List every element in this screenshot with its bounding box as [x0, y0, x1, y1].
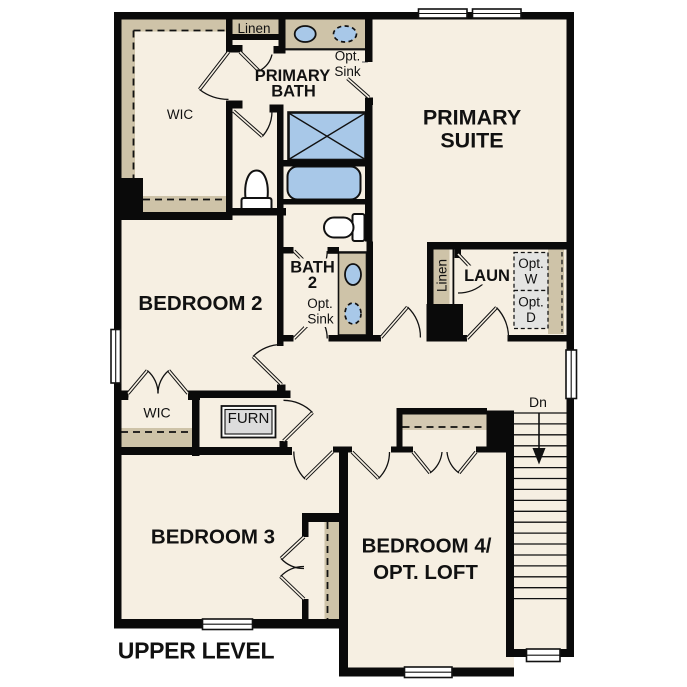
- svg-text:BEDROOM 2: BEDROOM 2: [138, 292, 262, 315]
- svg-text:2: 2: [308, 274, 317, 292]
- svg-text:D: D: [526, 310, 536, 325]
- svg-text:Opt.: Opt.: [335, 49, 361, 64]
- svg-text:Dn: Dn: [529, 394, 547, 410]
- svg-text:BATH: BATH: [271, 83, 316, 101]
- svg-text:BEDROOM 4/: BEDROOM 4/: [362, 535, 492, 558]
- svg-text:BEDROOM 3: BEDROOM 3: [151, 526, 275, 549]
- svg-text:PRIMARY: PRIMARY: [423, 106, 521, 130]
- svg-text:W: W: [525, 272, 538, 287]
- svg-text:SUITE: SUITE: [440, 129, 503, 153]
- svg-text:WIC: WIC: [143, 405, 170, 421]
- svg-text:Linen: Linen: [237, 21, 270, 36]
- svg-text:Linen: Linen: [434, 259, 449, 292]
- svg-text:UPPER LEVEL: UPPER LEVEL: [118, 638, 275, 664]
- svg-text:Opt.: Opt.: [518, 295, 544, 310]
- svg-text:Sink: Sink: [307, 312, 334, 327]
- svg-text:FURN: FURN: [228, 410, 270, 427]
- svg-text:Opt.: Opt.: [307, 296, 333, 311]
- svg-text:Sink: Sink: [334, 64, 361, 79]
- svg-text:WIC: WIC: [167, 107, 193, 122]
- svg-text:OPT. LOFT: OPT. LOFT: [373, 561, 478, 584]
- svg-text:Opt.: Opt.: [518, 256, 544, 271]
- svg-text:LAUN: LAUN: [464, 267, 510, 285]
